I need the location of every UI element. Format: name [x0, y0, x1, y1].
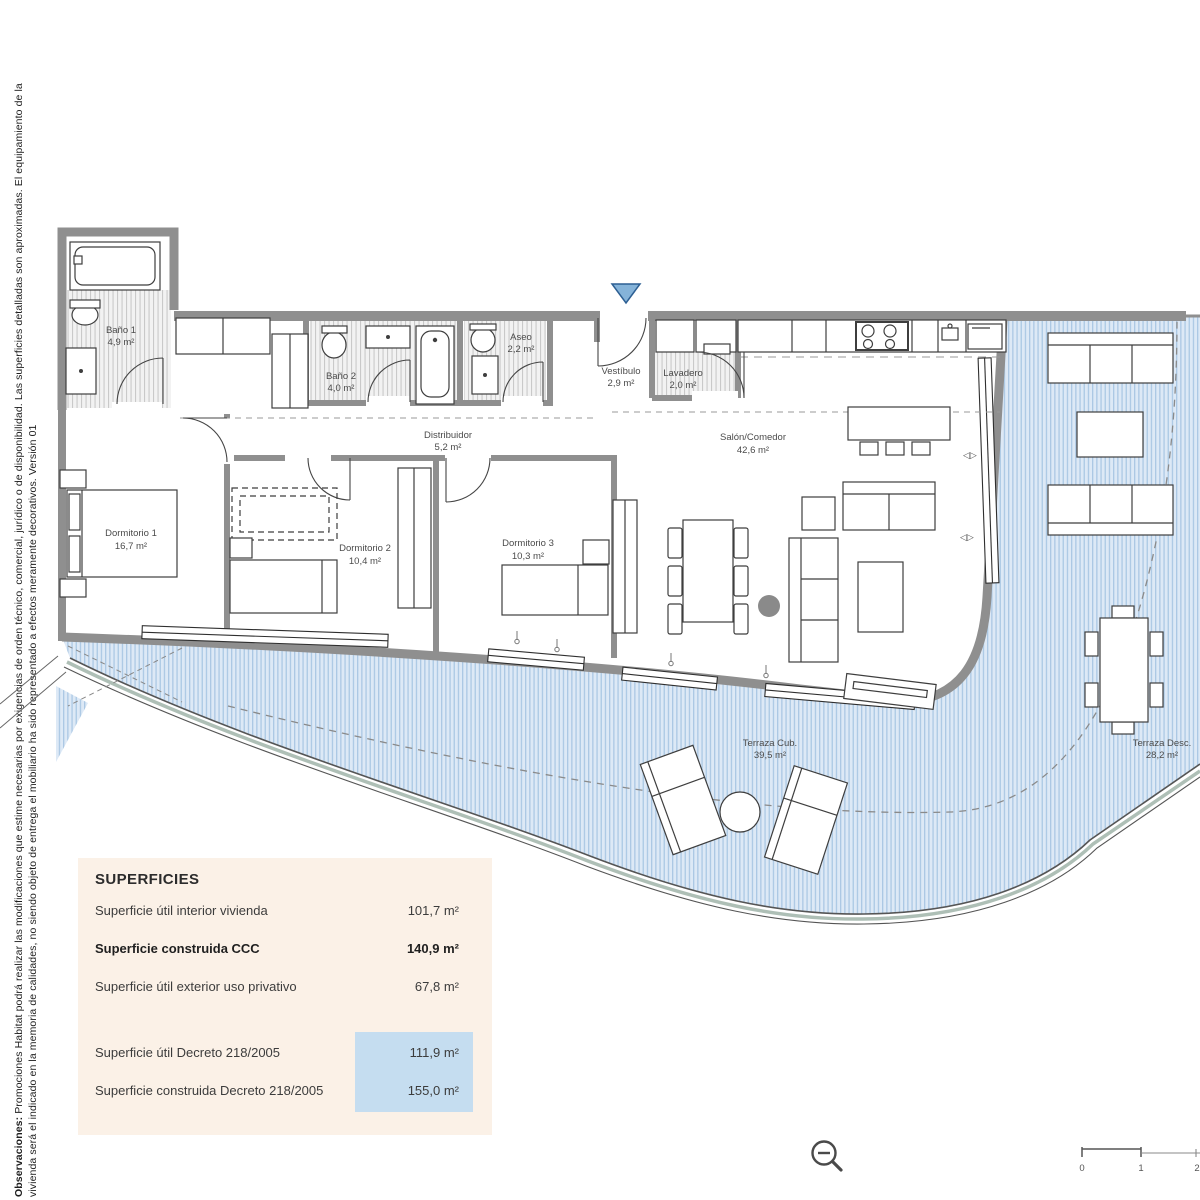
superficies-row: Superficie útil exterior uso privativo 6…	[95, 979, 475, 997]
row-value: 101,7 m²	[408, 903, 459, 918]
superficies-row: Superficie construida Decreto 218/2005 1…	[95, 1083, 475, 1101]
room-area-bano1: 4,9 m²	[108, 337, 135, 348]
scale-bar: 0 1 2	[1079, 1147, 1200, 1174]
row-value: 111,9 m²	[410, 1045, 459, 1060]
room-area-dormitorio3: 10,3 m²	[512, 551, 544, 562]
room-label-dormitorio2: Dormitorio 2	[339, 543, 391, 554]
room-label-dormitorio3: Dormitorio 3	[502, 538, 554, 549]
aseo-fixtures	[470, 324, 498, 394]
room-area-aseo: 2,2 m²	[508, 344, 535, 355]
row-label: Superficie construida Decreto 218/2005	[95, 1083, 323, 1098]
zoom-out-icon[interactable]	[813, 1142, 842, 1171]
row-value: 67,8 m²	[415, 979, 459, 994]
room-label-distribuidor: Distribuidor	[424, 430, 472, 441]
row-label: Superficie útil Decreto 218/2005	[95, 1045, 280, 1060]
room-area-terraza-cub: 39,5 m²	[754, 750, 786, 761]
row-value: 140,9 m²	[407, 941, 459, 956]
room-area-dormitorio1: 16,7 m²	[115, 541, 147, 552]
row-value: 155,0 m²	[408, 1083, 459, 1098]
floorplan-page: Observaciones: Promociones Habitat podrá…	[0, 0, 1200, 1200]
scale-tick-0: 0	[1079, 1163, 1084, 1174]
room-area-salon: 42,6 m²	[737, 445, 769, 456]
superficies-title: SUPERFICIES	[95, 871, 199, 888]
room-label-bano1: Baño 1	[106, 325, 136, 336]
room-area-lavadero: 2,0 m²	[670, 380, 697, 391]
row-label: Superficie construida CCC	[95, 941, 260, 956]
superficies-row: Superficie útil interior vivienda 101,7 …	[95, 903, 475, 921]
superficies-panel: SUPERFICIES Superficie útil interior viv…	[78, 858, 492, 1135]
room-label-dormitorio1: Dormitorio 1	[105, 528, 157, 539]
superficies-row: Superficie construida CCC 140,9 m²	[95, 941, 475, 959]
room-label-terraza-cub: Terraza Cub.	[743, 738, 797, 749]
room-label-salon: Salón/Comedor	[720, 432, 786, 443]
room-label-lavadero: Lavadero	[663, 368, 703, 379]
room-label-aseo: Aseo	[510, 332, 532, 343]
room-label-vestibulo: Vestíbulo	[601, 366, 640, 377]
room-area-bano2: 4,0 m²	[328, 383, 355, 394]
room-label-bano2: Baño 2	[326, 371, 356, 382]
room-area-vestibulo: 2,9 m²	[608, 378, 635, 389]
room-area-distribuidor: 5,2 m²	[435, 442, 462, 453]
room-area-dormitorio2: 10,4 m²	[349, 556, 381, 567]
sliding-door-icon: ◁▷	[960, 532, 974, 542]
lavadero-fixtures	[656, 320, 736, 354]
entrance-marker-icon	[612, 284, 640, 303]
superficies-row: Superficie útil Decreto 218/2005 111,9 m…	[95, 1045, 475, 1063]
room-area-terraza-desc: 28,2 m²	[1146, 750, 1178, 761]
row-label: Superficie útil interior vivienda	[95, 903, 268, 918]
scale-tick-1: 1	[1138, 1163, 1143, 1174]
scale-tick-2: 2	[1194, 1163, 1199, 1174]
room-label-terraza-desc: Terraza Desc.	[1133, 738, 1192, 749]
kitchen-counter	[738, 320, 1006, 352]
sliding-door-icon: ◁▷	[963, 450, 977, 460]
row-label: Superficie útil exterior uso privativo	[95, 979, 297, 994]
